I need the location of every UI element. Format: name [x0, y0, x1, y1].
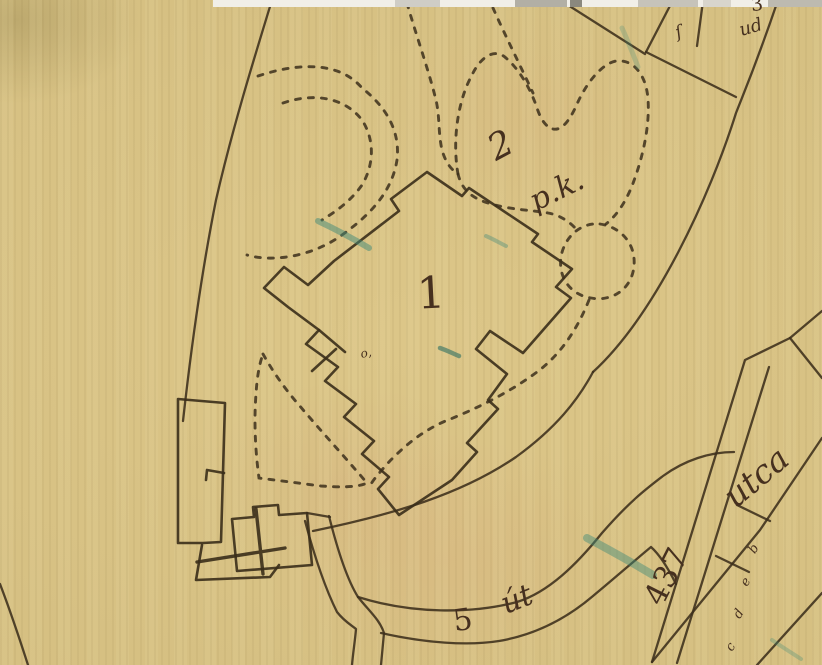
scan-edge-mark: [395, 0, 440, 7]
pencil-streak: [772, 640, 801, 659]
building-1-footprint: [264, 172, 572, 515]
top-parcel-divider: [697, 1, 703, 46]
garden-path: [407, 3, 458, 174]
garden-path-dashes: [247, 3, 648, 487]
label-road-5: 5: [451, 605, 474, 637]
label-parcel-1: 1: [416, 271, 446, 316]
label-mark-o: o,: [359, 346, 372, 360]
southeast-boundary-line: [313, 372, 593, 531]
garden-path: [371, 300, 589, 484]
street-line: [757, 593, 822, 665]
map-scan: 12p.k.5út437utca3udſo,bedc: [0, 0, 822, 665]
pencil-streak: [587, 538, 653, 575]
street-west-edge-line: [593, 0, 778, 372]
building-1-interior-wall: [319, 330, 345, 352]
top-parcel-line: [646, 52, 736, 97]
buildings: [178, 172, 572, 580]
garden-path: [283, 98, 371, 220]
map-linework: [0, 0, 822, 665]
garden-path: [493, 8, 533, 93]
road-east-edge: [329, 516, 384, 665]
left-boundary-line: [183, 0, 272, 421]
scan-edge-mark: [638, 0, 698, 7]
scan-edge-strip: [213, 0, 822, 7]
pencil-streak: [486, 236, 506, 246]
road-west-edge: [305, 521, 356, 665]
top-parcel-line: [646, 0, 673, 52]
pencil-streak: [440, 348, 459, 356]
pencil-streak: [318, 221, 369, 248]
wedge-parcel-divider: [716, 556, 749, 572]
parcel-boundary-lines: [0, 0, 822, 665]
bottom-left-boundary-line: [0, 584, 28, 665]
cross-building-footprint: [232, 505, 312, 571]
road-link-line: [307, 513, 330, 517]
scan-edge-mark: [570, 0, 582, 7]
street-fork-line: [790, 338, 822, 378]
outbuilding-tick: [206, 470, 224, 480]
scan-edge-mark: [703, 0, 731, 7]
label-parcel-3: 3: [750, 0, 765, 15]
scan-edge-mark: [515, 0, 567, 7]
garden-path-loop: [561, 224, 635, 299]
scan-edge-mark: [768, 0, 822, 7]
